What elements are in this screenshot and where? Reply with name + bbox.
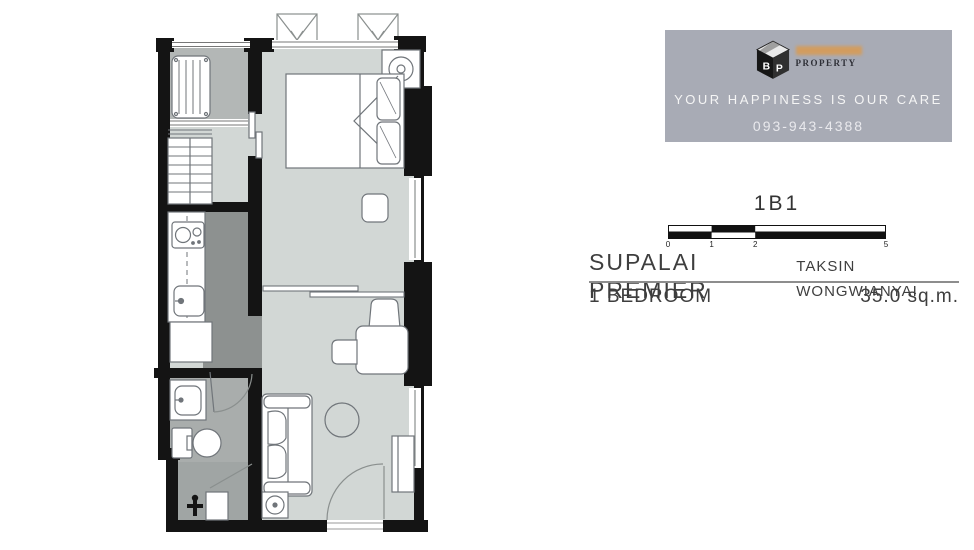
sofa-armrest-top	[264, 396, 310, 408]
brand-logo: B P PROPERTY	[665, 40, 952, 80]
shoe-cabinet	[392, 436, 414, 492]
desk-chair	[369, 299, 400, 328]
brand-logo-subtext: PROPERTY	[796, 58, 862, 68]
flyer-page: B P PROPERTY YOUR HAPPINESS IS OUR CARE …	[0, 0, 974, 550]
brand-phone: 093-943-4388	[665, 118, 952, 134]
brand-tagline: YOUR HAPPINESS IS OUR CARE	[665, 92, 952, 107]
svg-text:B: B	[762, 61, 770, 72]
desk	[356, 326, 408, 374]
side-table	[262, 492, 288, 518]
unit-spec-row: 1 BEDROOM 35.0 sq.m.	[589, 286, 959, 308]
scale-bar	[668, 225, 886, 239]
kitchen-sink	[174, 286, 204, 316]
bedroom-sliding-door-panel-2	[256, 132, 262, 158]
ac-compressor-unit	[172, 56, 210, 118]
sofa	[262, 394, 312, 496]
guest-chair	[332, 340, 357, 364]
sofa-cushion-2	[268, 445, 286, 478]
bp-cube-logo-icon: B P	[756, 40, 790, 80]
refrigerator	[170, 322, 212, 362]
title-divider	[589, 281, 959, 283]
stool	[362, 194, 388, 222]
unit-code: 1B1	[668, 192, 886, 216]
brand-name-blurred	[796, 46, 862, 55]
brand-panel: B P PROPERTY YOUR HAPPINESS IS OUR CARE …	[665, 30, 952, 142]
wardrobe-shelves	[168, 130, 212, 204]
drain-box	[206, 492, 228, 520]
sofa-cushion-1	[268, 411, 286, 444]
two-burner-stove	[172, 222, 204, 248]
bedroom-count: 1 BEDROOM	[589, 286, 712, 308]
vanity-sink	[170, 380, 206, 420]
ac-units-ledge	[277, 14, 398, 42]
bedroom-sliding-door-panel-1	[249, 112, 255, 138]
unit-area: 35.0 sq.m.	[860, 286, 959, 308]
svg-text:P: P	[775, 63, 782, 74]
double-bed	[286, 74, 404, 168]
